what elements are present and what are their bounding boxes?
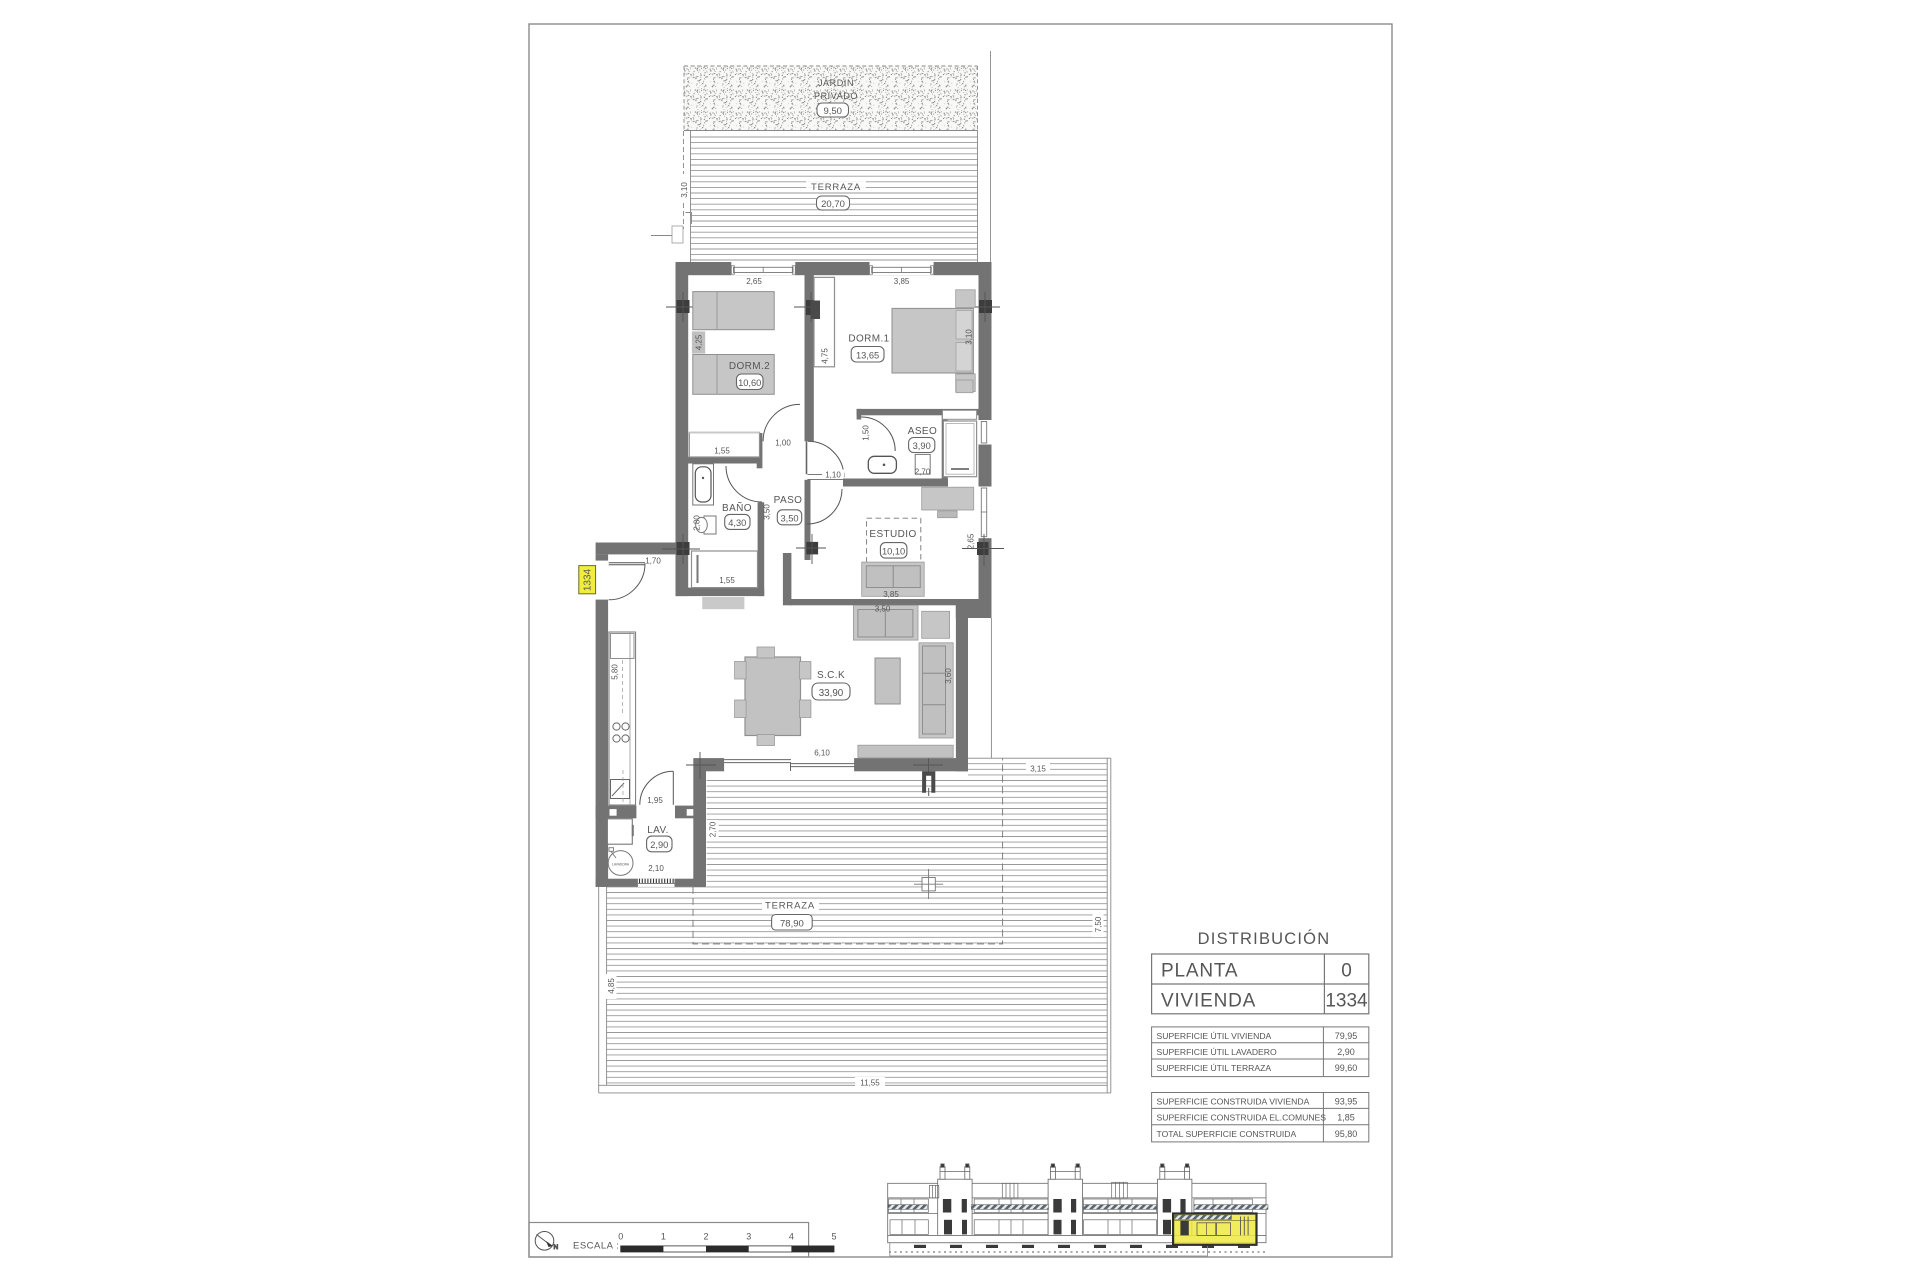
svg-text:4: 4 — [789, 1232, 794, 1242]
svg-text:3,50: 3,50 — [780, 513, 798, 523]
svg-text:10,10: 10,10 — [882, 546, 905, 556]
svg-text:TERRAZA: TERRAZA — [811, 182, 861, 193]
svg-text:2,70: 2,70 — [915, 468, 931, 477]
svg-text:2: 2 — [703, 1232, 708, 1242]
svg-text:ESTUDIO: ESTUDIO — [869, 529, 916, 540]
svg-text:3,85: 3,85 — [894, 277, 910, 286]
svg-text:DORM.2: DORM.2 — [729, 361, 770, 372]
svg-text:10,60: 10,60 — [738, 378, 761, 388]
svg-text:2,90: 2,90 — [1337, 1047, 1355, 1057]
svg-text:2,90: 2,90 — [650, 840, 668, 850]
svg-text:2,80: 2,80 — [693, 515, 702, 531]
svg-text:1334: 1334 — [1325, 991, 1368, 1012]
svg-text:4,85: 4,85 — [607, 978, 616, 994]
svg-text:1,85: 1,85 — [1337, 1113, 1355, 1123]
svg-text:33,90: 33,90 — [819, 688, 844, 699]
svg-text:1,95: 1,95 — [647, 796, 663, 805]
svg-text:DISTRIBUCIÓN: DISTRIBUCIÓN — [1198, 929, 1331, 948]
svg-text:11,55: 11,55 — [860, 1079, 880, 1088]
svg-text:JARDIN: JARDIN — [818, 78, 854, 88]
svg-text:3,10: 3,10 — [680, 182, 689, 198]
svg-text:3,50: 3,50 — [875, 605, 891, 614]
svg-text:3: 3 — [746, 1232, 751, 1242]
svg-text:BAÑO: BAÑO — [722, 501, 752, 514]
svg-text:1,70: 1,70 — [645, 557, 661, 566]
svg-text:SUPERFICIE ÚTIL TERRAZA: SUPERFICIE ÚTIL TERRAZA — [1157, 1063, 1272, 1073]
svg-text:7,50: 7,50 — [1094, 916, 1103, 932]
svg-text:1: 1 — [661, 1232, 666, 1242]
svg-text:SUPERFICIE CONSTRUIDA VIVIENDA: SUPERFICIE CONSTRUIDA VIVIENDA — [1157, 1096, 1310, 1106]
svg-text:93,95: 93,95 — [1335, 1096, 1358, 1106]
svg-text:ESCALA :: ESCALA : — [573, 1241, 619, 1252]
svg-text:SUPERFICIE ÚTIL LAVADERO: SUPERFICIE ÚTIL LAVADERO — [1157, 1047, 1277, 1057]
svg-text:1,55: 1,55 — [714, 447, 730, 456]
svg-text:78,90: 78,90 — [780, 918, 804, 929]
svg-text:1,10: 1,10 — [825, 471, 841, 480]
svg-text:3,10: 3,10 — [965, 329, 974, 345]
svg-text:DORM.1: DORM.1 — [848, 334, 889, 345]
svg-text:2,65: 2,65 — [746, 277, 762, 286]
svg-text:4,30: 4,30 — [728, 518, 746, 528]
svg-text:20,70: 20,70 — [821, 199, 845, 210]
svg-text:2,65: 2,65 — [967, 533, 976, 549]
svg-text:2,70: 2,70 — [709, 821, 718, 837]
svg-text:PLANTA: PLANTA — [1161, 961, 1238, 982]
svg-text:95,80: 95,80 — [1335, 1129, 1358, 1139]
svg-text:SUPERFICIE ÚTIL VIVIENDA: SUPERFICIE ÚTIL VIVIENDA — [1157, 1031, 1272, 1041]
svg-text:TERRAZA: TERRAZA — [765, 901, 815, 912]
svg-text:ASEO: ASEO — [908, 426, 937, 437]
svg-text:99,60: 99,60 — [1335, 1063, 1358, 1073]
svg-text:SUPERFICIE CONSTRUIDA EL.COMUN: SUPERFICIE CONSTRUIDA EL.COMUNES — [1157, 1113, 1327, 1123]
svg-text:PRIVADO: PRIVADO — [814, 91, 858, 101]
svg-text:3,90: 3,90 — [913, 441, 931, 451]
svg-text:3,85: 3,85 — [883, 590, 899, 599]
svg-text:VIVIENDA: VIVIENDA — [1161, 991, 1256, 1012]
svg-text:3,60: 3,60 — [944, 668, 953, 684]
svg-text:1,55: 1,55 — [719, 576, 735, 585]
svg-text:1,00: 1,00 — [775, 439, 791, 448]
svg-text:5: 5 — [831, 1232, 836, 1242]
svg-text:79,95: 79,95 — [1335, 1031, 1358, 1041]
svg-text:5,80: 5,80 — [611, 664, 620, 680]
svg-text:1334: 1334 — [583, 568, 594, 591]
svg-text:PASO: PASO — [774, 495, 803, 506]
svg-text:6,10: 6,10 — [814, 749, 830, 758]
svg-text:S.C.K: S.C.K — [817, 670, 845, 681]
svg-text:0: 0 — [618, 1232, 623, 1242]
svg-text:3,15: 3,15 — [1030, 765, 1046, 774]
svg-text:4,25: 4,25 — [695, 334, 704, 350]
svg-text:N: N — [554, 1244, 559, 1251]
svg-text:13,65: 13,65 — [856, 350, 879, 360]
svg-text:LAVADORA: LAVADORA — [612, 863, 630, 867]
svg-text:9,50: 9,50 — [823, 106, 842, 117]
svg-text:TOTAL SUPERFICIE CONSTRUIDA: TOTAL SUPERFICIE CONSTRUIDA — [1157, 1129, 1297, 1139]
svg-text:2,10: 2,10 — [648, 864, 664, 873]
svg-text:LAV.: LAV. — [647, 825, 669, 836]
svg-text:3,50: 3,50 — [763, 504, 772, 520]
svg-text:0: 0 — [1341, 961, 1352, 982]
svg-text:1,50: 1,50 — [862, 425, 871, 441]
svg-text:4,75: 4,75 — [821, 348, 830, 364]
